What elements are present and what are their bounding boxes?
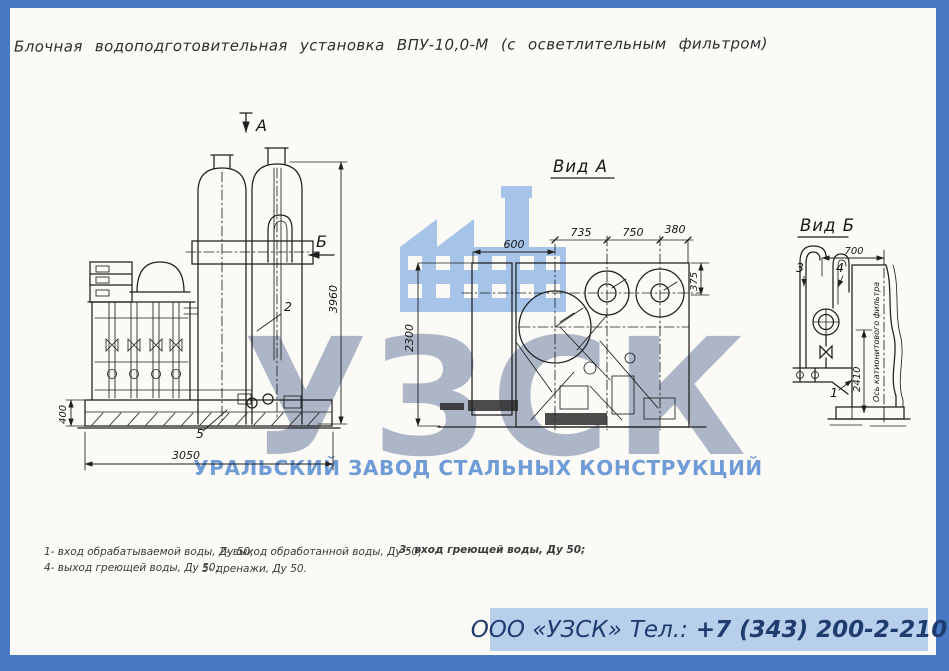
footer-contact-bar: ООО «УЗСК» Тел.: +7 (343) 200-2-210 bbox=[490, 608, 928, 651]
filter-tanks bbox=[186, 148, 318, 424]
dim-735-text: 735 bbox=[571, 226, 592, 239]
main-view: А Б bbox=[58, 113, 347, 470]
dims-735-750-380: 735 750 380 bbox=[550, 223, 693, 263]
legend-item-5: 5- дренажи, Ду 50. bbox=[202, 563, 307, 575]
dim-2300: 2300 bbox=[403, 263, 472, 426]
legend-item-2: 2- выход обработанной воды, Ду 50; bbox=[219, 546, 422, 558]
filter-body-section: Ось катионитового фильтра bbox=[852, 250, 903, 423]
view-a-title: Вид А bbox=[553, 157, 608, 176]
piping-skid-assembly bbox=[78, 262, 340, 428]
dim-600-text: 600 bbox=[504, 238, 525, 251]
dim-380-text: 380 bbox=[665, 223, 686, 236]
view-b-title: Вид Б bbox=[800, 216, 855, 235]
dim-600: 600 bbox=[473, 238, 555, 263]
footer-company: ООО «УЗСК» bbox=[471, 617, 622, 643]
view-a-equipment-detail bbox=[440, 315, 675, 425]
dim-2300-text: 2300 bbox=[403, 324, 416, 352]
dim-700: 700 bbox=[822, 246, 884, 276]
legend-item-3: 3- вход греющей воды, Ду 50; bbox=[399, 544, 585, 556]
scanned-drawing-page: УЗСК УРАЛЬСКИЙ ЗАВОД СТАЛЬНЫХ КОНСТРУКЦИ… bbox=[0, 0, 949, 671]
dim-400-text: 400 bbox=[58, 405, 69, 424]
dim-3050-text: 3050 bbox=[172, 449, 200, 462]
dim-3050: 3050 bbox=[85, 432, 333, 470]
view-arrow-b-label: Б bbox=[316, 232, 327, 251]
dim-2410-text: 2410 bbox=[852, 367, 863, 392]
dim-2410: 2410 bbox=[852, 330, 872, 413]
dim-3960-text: 3960 bbox=[327, 285, 340, 313]
dim-375-text: 375 bbox=[689, 272, 700, 291]
view-b-base bbox=[828, 407, 910, 426]
part-label-4: 4 bbox=[836, 260, 844, 275]
view-arrow-a-label: А bbox=[255, 116, 267, 135]
dim-750-text: 750 bbox=[623, 226, 644, 239]
dim-400: 400 bbox=[58, 400, 95, 426]
part-label-1: 1 bbox=[830, 385, 838, 400]
footer-phone: +7 (343) 200-2-210 bbox=[696, 617, 947, 643]
view-direction-a-marker: А bbox=[240, 113, 267, 135]
legend-item-4: 4- выход греющей воды, Ду 50; bbox=[44, 562, 219, 574]
dim-3960: 3960 bbox=[290, 162, 347, 424]
part-label-2: 2 bbox=[284, 299, 292, 314]
part-label-5: 5 bbox=[196, 426, 204, 441]
dim-375: 375 bbox=[689, 263, 709, 295]
dim-700-text: 700 bbox=[844, 246, 863, 257]
tank-circles-top-view bbox=[519, 269, 684, 363]
footer-tel-label: Тел.: bbox=[630, 617, 688, 643]
view-b: Вид Б 700 Ось катионитового фильтра 2410 bbox=[793, 216, 910, 426]
part-label-3: 3 bbox=[796, 260, 804, 275]
view-a: Вид А 600 bbox=[403, 157, 709, 430]
filter-axis-label: Ось катионитового фильтра bbox=[872, 282, 881, 402]
